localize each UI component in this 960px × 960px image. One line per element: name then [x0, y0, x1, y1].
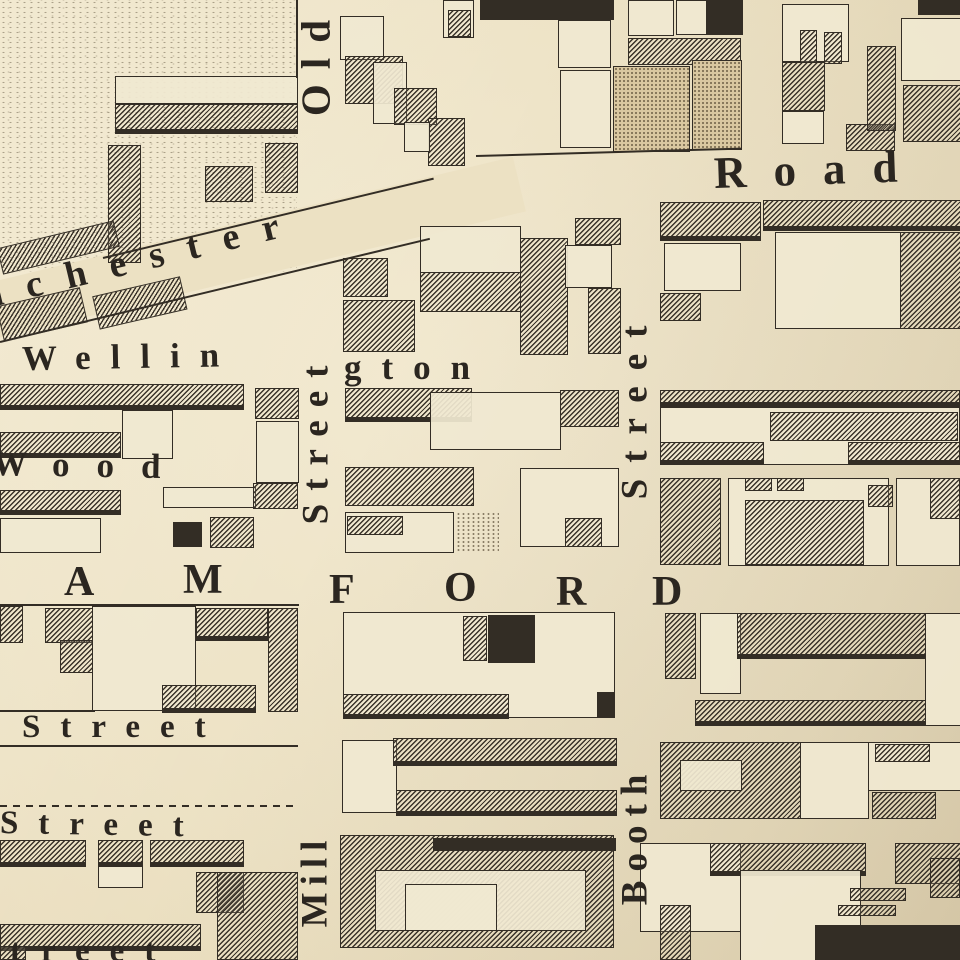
building-hatched: [565, 518, 602, 547]
building-hatched: [448, 10, 471, 37]
building-hatched: [205, 166, 253, 202]
building-hatched: [737, 613, 926, 659]
building-stippled: [613, 66, 690, 152]
building-hatched: [930, 478, 960, 519]
building-hatched: [850, 888, 906, 901]
map-canvas: RoadnchesterWellingtonWoodAMFORDStreetSt…: [0, 0, 960, 960]
building-outline: [664, 243, 741, 291]
building-outline: [115, 76, 298, 104]
building-hatched: [0, 384, 244, 410]
street-label-street-v-booth: Street: [617, 277, 656, 533]
building-hatched: [777, 478, 804, 491]
building-outline: [342, 740, 397, 813]
street-label-street-h1: Street: [22, 710, 226, 745]
building-hatched: [253, 483, 298, 509]
building-hatched: [930, 858, 960, 898]
street-label-street-v-old: Street: [298, 323, 337, 555]
building-outline: [256, 421, 299, 483]
street-label-street-h3: treet: [10, 934, 175, 960]
building-hatched: [660, 202, 761, 241]
building-solid: [597, 692, 614, 717]
building-hatched: [660, 905, 691, 960]
building-hatched: [660, 390, 960, 407]
building-outline: [430, 392, 561, 450]
building-solid: [173, 522, 202, 547]
building-hatched: [343, 300, 415, 352]
building-hatched: [420, 272, 521, 312]
street-label-street-h2: Street: [0, 806, 204, 844]
building-outline: [340, 16, 384, 60]
building-hatched: [782, 62, 825, 111]
building-hatched: [867, 46, 896, 131]
building-hatched: [393, 738, 617, 766]
building-outline: [782, 111, 824, 144]
building-hatched: [875, 744, 930, 762]
street-label-stamford-R: R: [556, 570, 586, 614]
street-label-old: Old: [294, 0, 337, 131]
building-hatched: [838, 905, 896, 916]
building-solid: [707, 0, 743, 35]
building-outline: [628, 0, 674, 36]
building-solid: [480, 0, 614, 20]
building-outline: [925, 613, 960, 726]
street-frontage-line: [0, 604, 299, 606]
building-hatched: [660, 293, 701, 321]
building-hatched: [665, 613, 696, 679]
building-hatched: [396, 790, 617, 816]
building-outline: [98, 866, 143, 888]
street-label-wood: Wood: [0, 446, 188, 486]
building-hatched: [45, 608, 93, 643]
building-hatched: [196, 608, 268, 641]
street-label-booth: Booth: [617, 740, 656, 932]
street-label-stamford-A: A: [64, 560, 94, 604]
building-solid: [815, 925, 960, 960]
building-hatched: [343, 258, 388, 297]
building-outline: [560, 70, 611, 148]
building-outline: [680, 760, 742, 791]
building-hatched: [60, 640, 93, 673]
building-hatched: [745, 478, 772, 491]
building-outline: [405, 884, 497, 931]
street-label-stamford-M: M: [183, 558, 223, 602]
street-frontage-line: [0, 745, 298, 747]
building-hatched: [0, 840, 86, 867]
building-hatched: [872, 792, 936, 819]
street-label-stamford-D: D: [652, 570, 682, 614]
building-hatched: [255, 388, 299, 419]
building-solid: [918, 0, 960, 15]
building-hatched: [217, 872, 298, 960]
building-solid: [488, 615, 535, 663]
building-solid: [433, 838, 616, 851]
street-label-wellington-2: gton: [344, 350, 490, 387]
building-hatched: [345, 467, 474, 506]
street-label-stamford-F: F: [329, 568, 355, 612]
building-hatched: [0, 606, 23, 643]
building-hatched: [210, 517, 254, 548]
building-hatched: [115, 104, 298, 134]
building-hatched: [347, 516, 403, 535]
garden-dots: [456, 512, 499, 553]
building-hatched: [903, 85, 960, 142]
building-hatched: [770, 412, 958, 441]
building-outline: [901, 18, 960, 81]
building-outline: [404, 122, 430, 152]
building-hatched: [660, 442, 764, 465]
building-hatched: [900, 232, 960, 329]
building-hatched: [343, 694, 509, 719]
building-hatched: [695, 700, 926, 726]
building-outline: [420, 226, 521, 273]
building-hatched: [868, 485, 893, 507]
building-hatched: [660, 478, 721, 565]
building-hatched: [463, 616, 487, 661]
building-stippled: [692, 60, 742, 150]
building-hatched: [848, 442, 960, 465]
street-label-wellington-1: Wellin: [22, 337, 240, 378]
building-outline: [163, 487, 256, 508]
building-hatched: [520, 238, 568, 355]
building-hatched: [265, 143, 298, 193]
building-outline: [565, 245, 612, 288]
building-outline: [558, 20, 611, 68]
building-hatched: [575, 218, 621, 245]
building-hatched: [98, 840, 143, 867]
building-hatched: [763, 200, 960, 231]
street-label-mill: Mill: [297, 808, 336, 954]
building-hatched: [800, 30, 817, 63]
building-hatched: [0, 490, 121, 515]
building-hatched: [268, 608, 298, 712]
street-label-road: Road: [713, 143, 925, 198]
building-hatched: [560, 390, 619, 427]
building-hatched: [824, 32, 842, 64]
building-outline: [0, 518, 101, 553]
building-outline: [775, 232, 901, 329]
building-hatched: [745, 500, 864, 565]
building-outline: [700, 613, 741, 694]
building-outline: [800, 742, 869, 819]
street-frontage-line: [476, 148, 742, 157]
street-label-stamford-O: O: [444, 566, 477, 610]
building-hatched: [428, 118, 465, 166]
building-outline: [676, 0, 707, 35]
